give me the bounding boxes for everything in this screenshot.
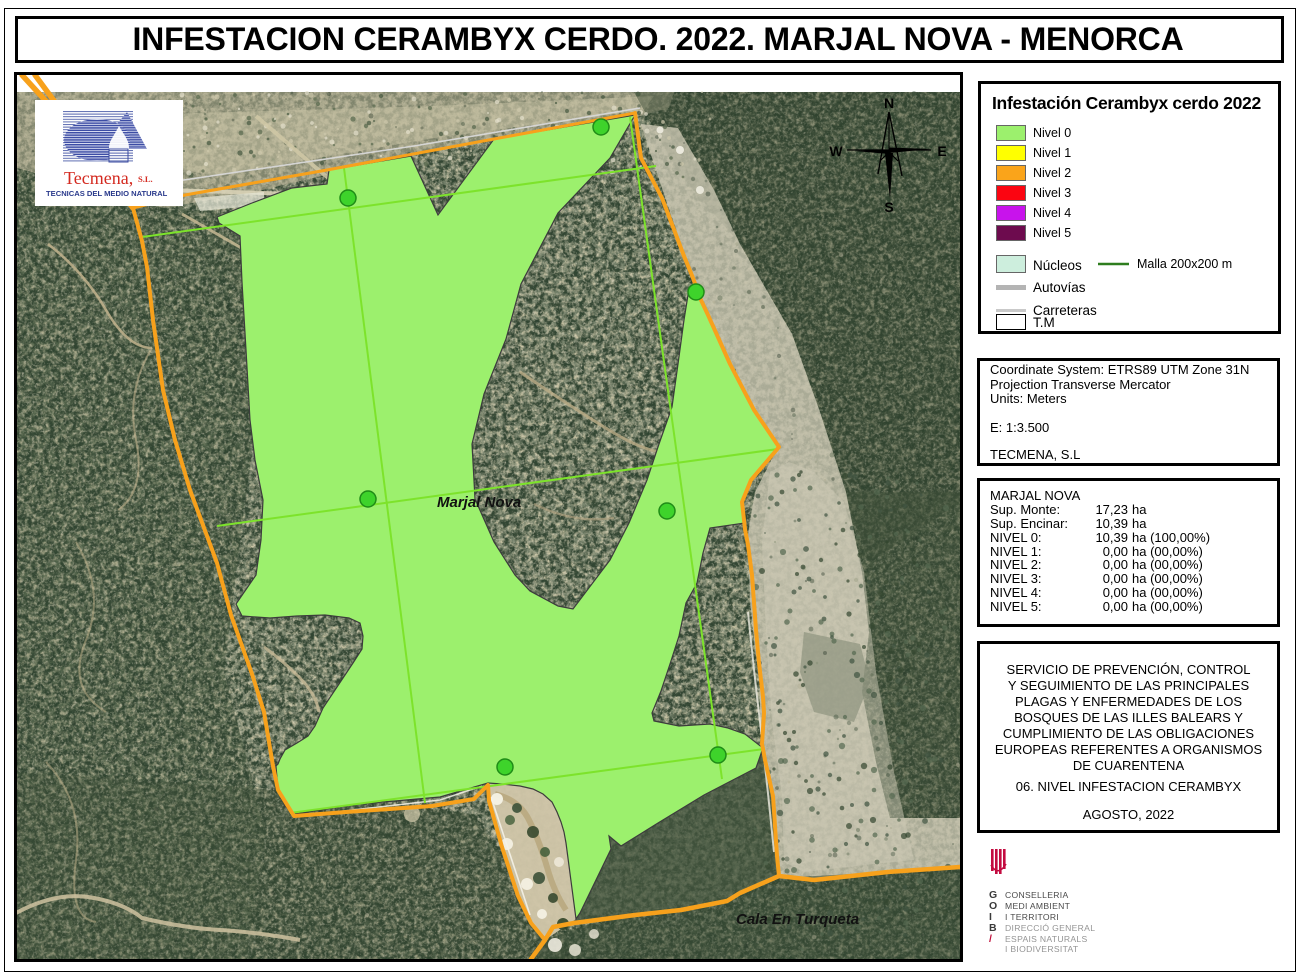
svg-text:Cala En Turqueta: Cala En Turqueta [736,911,859,928]
svg-text:W: W [829,143,843,159]
svg-text:TECNICAS DEL MEDIO NATURAL: TECNICAS DEL MEDIO NATURAL [46,189,168,198]
svg-text:Tecmena,: Tecmena, [64,168,133,188]
svg-text:N: N [884,95,894,111]
svg-text:S.L.: S.L. [138,174,153,184]
svg-text:Malla 200x200 m: Malla 200x200 m [1137,257,1232,271]
svg-text:Marjal Nova: Marjal Nova [437,494,521,511]
svg-text:E: E [937,143,946,159]
svg-text:S: S [884,199,893,215]
